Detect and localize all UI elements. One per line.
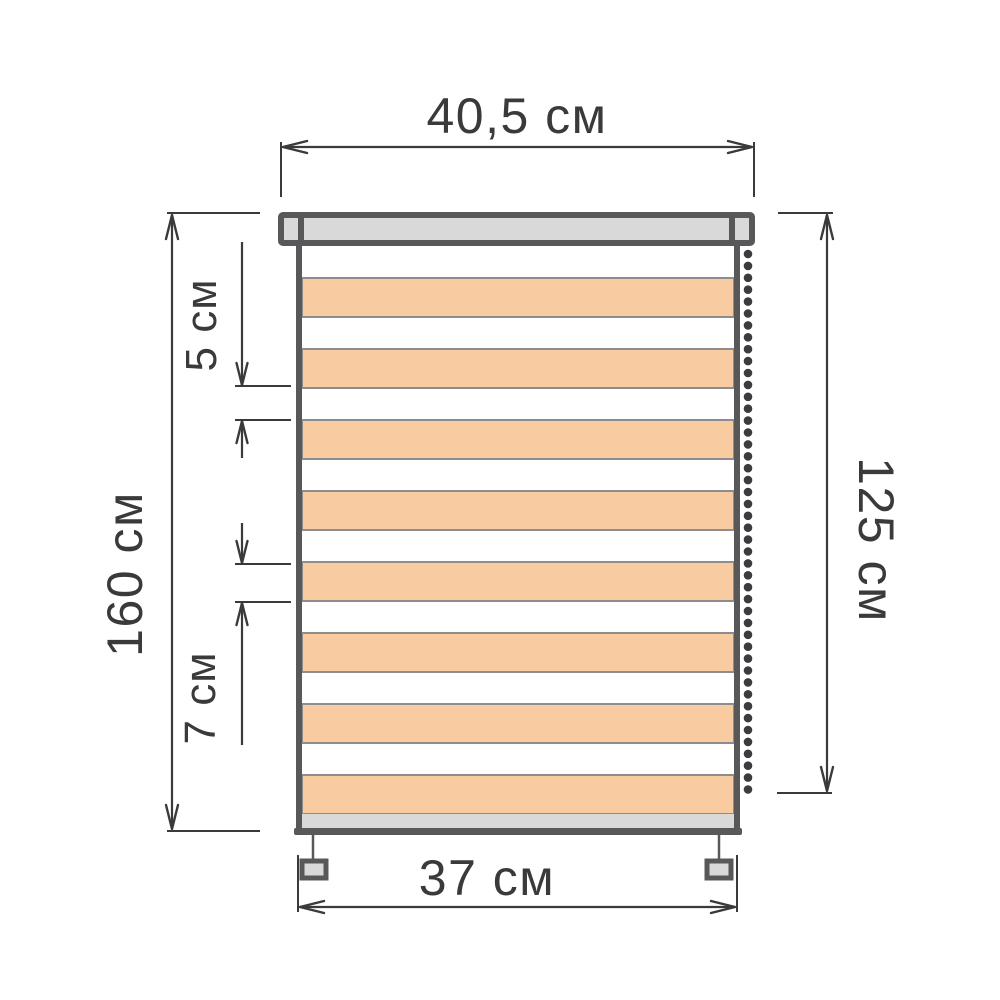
- chain-bead: [744, 404, 753, 413]
- chain-bead: [744, 357, 753, 366]
- fabric-left-border: [296, 246, 302, 834]
- bracket-left: [302, 834, 326, 878]
- chain-bead: [744, 274, 753, 283]
- chain-bead: [744, 607, 753, 616]
- chain-bead: [744, 619, 753, 628]
- fabric-stripe: [302, 775, 734, 814]
- chain-bead: [744, 297, 753, 306]
- chain-bead: [744, 631, 753, 640]
- bracket-right: [707, 834, 731, 878]
- chain-bead: [744, 702, 753, 711]
- fabric-stripe: [302, 633, 734, 672]
- bottom-rail-edge: [294, 828, 742, 835]
- chain-bead: [744, 785, 753, 794]
- fabric-stripe: [302, 704, 734, 743]
- chain-bead: [744, 393, 753, 402]
- dimension-label-white-stripe: 5 см: [177, 279, 226, 372]
- chain-bead: [744, 523, 753, 532]
- dimension-label-orange-stripe: 7 см: [176, 652, 225, 745]
- bracket-left-box: [302, 861, 326, 878]
- dimension-label-left-height: 160 см: [97, 491, 153, 657]
- fabric-stripe: [302, 349, 734, 388]
- chain-bead: [744, 428, 753, 437]
- chain-bead: [744, 416, 753, 425]
- fabric-stripe: [302, 562, 734, 601]
- chain-bead: [744, 726, 753, 735]
- chain-bead: [744, 773, 753, 782]
- chain-bead: [744, 321, 753, 330]
- dimension-bottom-width: 37 см: [298, 850, 737, 913]
- chain-bead: [744, 666, 753, 675]
- bracket-right-box: [707, 861, 731, 878]
- dimension-right-height: 125 см: [777, 213, 904, 793]
- dimension-orange-stripe: 7 см: [176, 523, 291, 745]
- chain-bead: [744, 262, 753, 271]
- dimension-white-stripe: 5 см: [177, 242, 291, 458]
- chain-bead: [744, 309, 753, 318]
- chain-bead: [744, 440, 753, 449]
- diagram-svg: 40,5 см 160 см 125 см 5 см 7 см: [0, 0, 1000, 1000]
- chain-bead: [744, 750, 753, 759]
- chain-bead: [744, 547, 753, 556]
- chain-bead: [744, 476, 753, 485]
- chain-bead: [744, 642, 753, 651]
- chain-bead: [744, 250, 753, 259]
- dimension-label-top-width: 40,5 см: [426, 88, 607, 144]
- chain-bead: [744, 345, 753, 354]
- blind-dimension-diagram: 40,5 см 160 см 125 см 5 см 7 см: [0, 0, 1000, 1000]
- dimension-label-right-height: 125 см: [848, 457, 904, 623]
- cassette: [281, 212, 752, 246]
- fabric-right-border: [734, 246, 740, 834]
- chain-bead: [744, 738, 753, 747]
- chain-bead: [744, 285, 753, 294]
- chain-bead: [744, 654, 753, 663]
- chain-bead: [744, 464, 753, 473]
- chain-bead: [744, 714, 753, 723]
- blind: [281, 212, 752, 878]
- fabric-stripe: [302, 278, 734, 317]
- fabric-stripe: [302, 491, 734, 530]
- chain-bead: [744, 678, 753, 687]
- chain-bead: [744, 452, 753, 461]
- chain-bead: [744, 690, 753, 699]
- chain-bead: [744, 369, 753, 378]
- fabric-stripe: [302, 420, 734, 459]
- chain-bead: [744, 500, 753, 509]
- chain-bead: [744, 761, 753, 770]
- chain-bead: [744, 595, 753, 604]
- control-chain: [744, 250, 753, 794]
- chain-bead: [744, 333, 753, 342]
- chain-bead: [744, 512, 753, 521]
- bottom-rail: [294, 814, 742, 835]
- chain-bead: [744, 535, 753, 544]
- chain-bead: [744, 583, 753, 592]
- chain-bead: [744, 571, 753, 580]
- chain-bead: [744, 488, 753, 497]
- dimension-label-bottom-width: 37 см: [419, 850, 555, 906]
- cassette-bar: [281, 215, 752, 243]
- dimension-top-width: 40,5 см: [281, 88, 754, 197]
- chain-bead: [744, 381, 753, 390]
- bottom-rail-bar: [302, 814, 734, 828]
- chain-bead: [744, 559, 753, 568]
